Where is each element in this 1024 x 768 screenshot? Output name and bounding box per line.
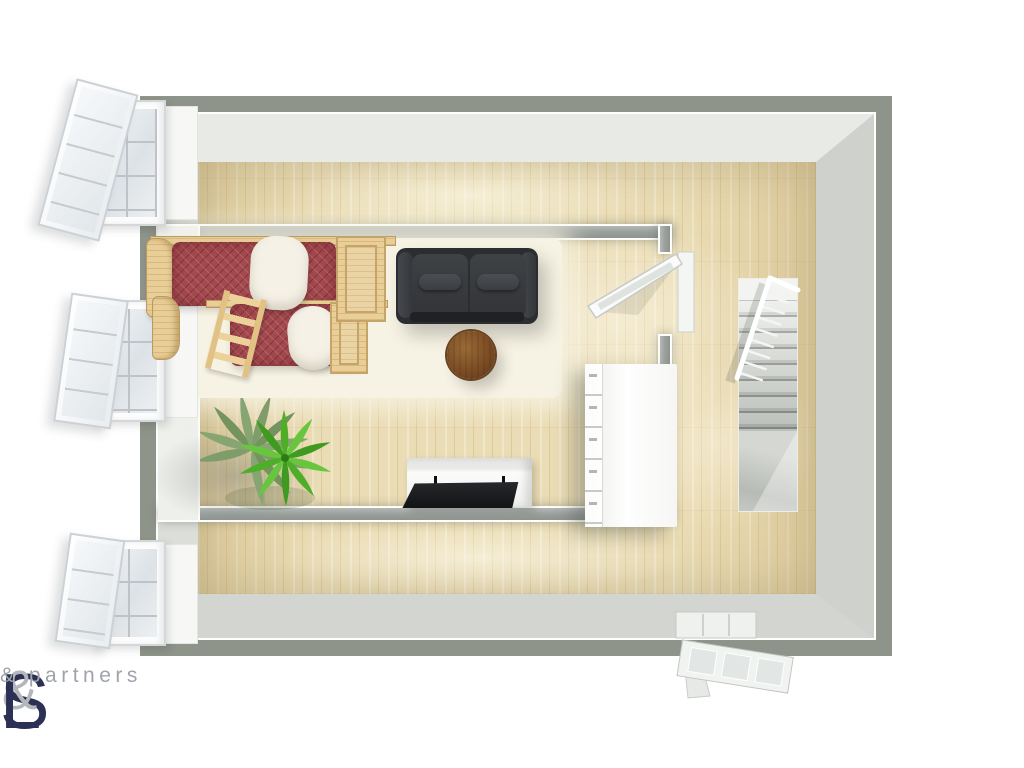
sofa-pillow <box>419 274 461 290</box>
logo-subtitle: & partners <box>0 664 142 688</box>
dresser-handles <box>589 374 597 519</box>
brand-logo: S&L & partners <box>0 662 1024 762</box>
dresser <box>585 364 677 527</box>
bed-footboard-upper <box>336 236 386 322</box>
bed-headboard-lower <box>152 296 180 360</box>
coffee-table <box>447 331 495 379</box>
floorplan-render: S&L & partners <box>0 0 1024 768</box>
interior-door-open <box>575 235 695 345</box>
sofa-pillow <box>477 274 519 290</box>
sash-glass <box>63 541 118 642</box>
sofa <box>396 248 538 324</box>
sofa-armrest-left <box>398 252 413 318</box>
sash-glass <box>61 301 121 422</box>
footboard-panel <box>345 245 377 313</box>
tv <box>400 482 522 508</box>
stair-railing <box>722 250 807 390</box>
sofa-front-edge <box>410 312 524 322</box>
palm-plant <box>200 398 335 518</box>
